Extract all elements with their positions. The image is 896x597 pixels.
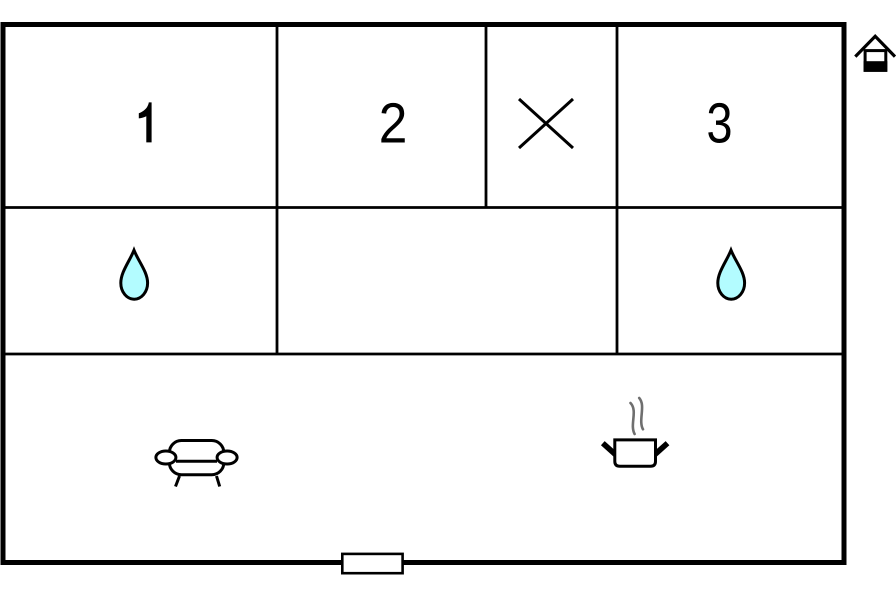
svg-text:2: 2 (379, 92, 408, 156)
svg-text:3: 3 (707, 92, 733, 156)
